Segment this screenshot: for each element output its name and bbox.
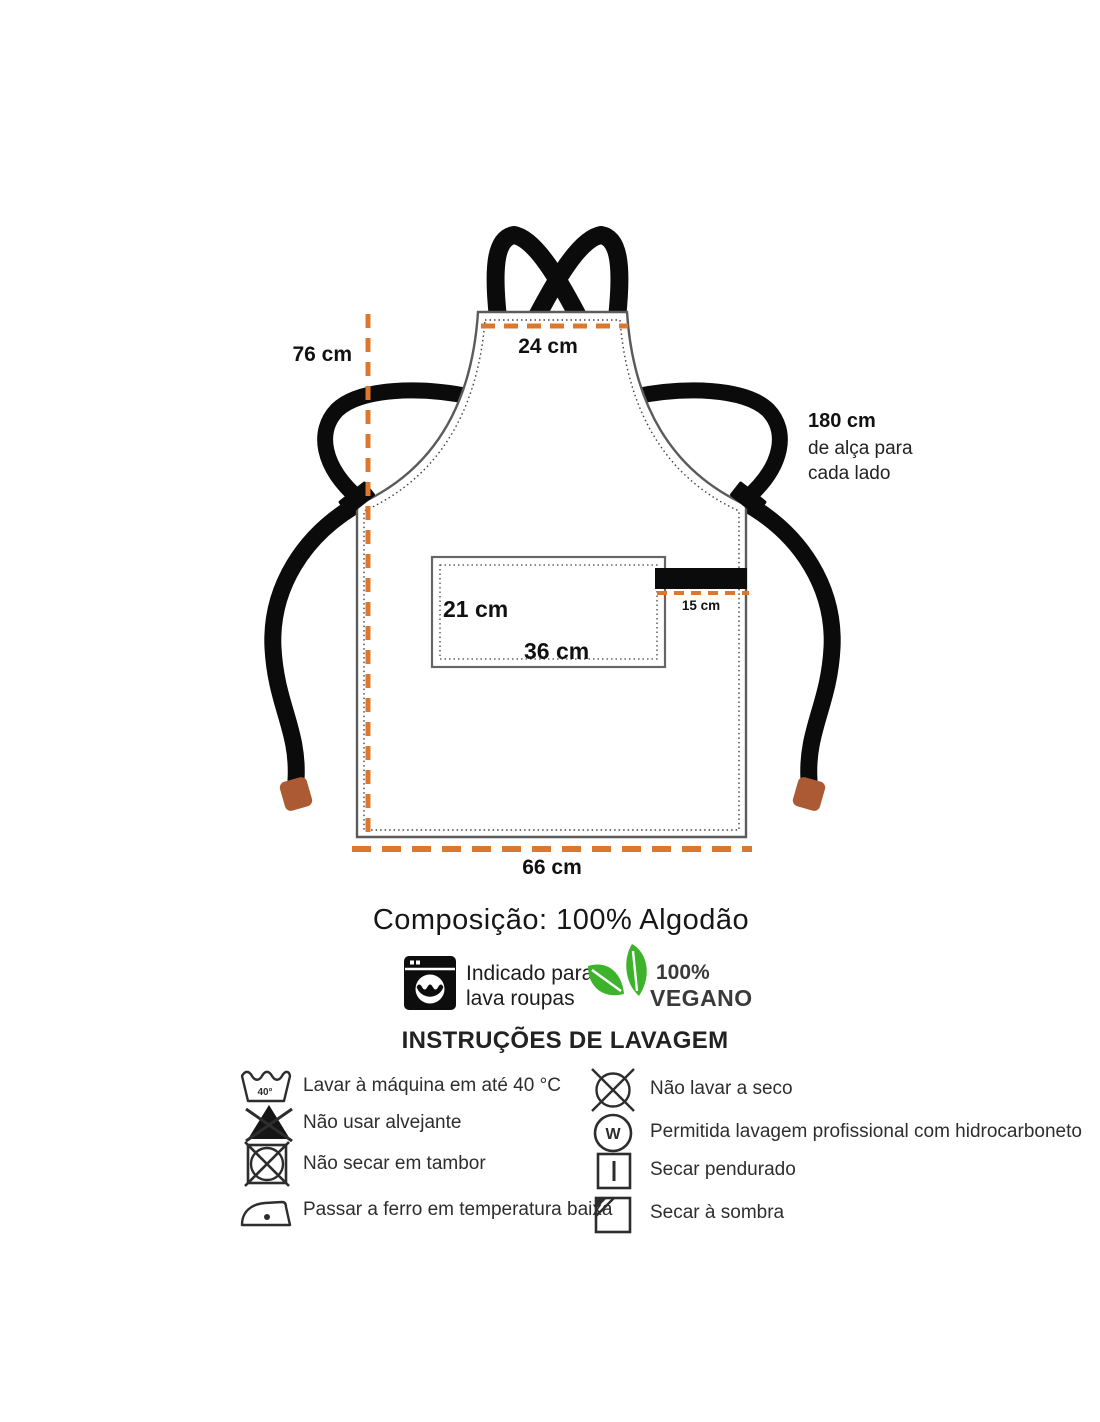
wash-temp-value: 40° [257, 1087, 272, 1098]
care-label-line-dry: Secar pendurado [650, 1159, 796, 1181]
dry-in-shade-icon [591, 1191, 635, 1237]
neck-straps-icon [496, 235, 620, 318]
pocket-width-label: 36 cm [524, 638, 589, 665]
care-label-professional: Permitida lavagem profissional com hidro… [650, 1121, 1082, 1143]
washing-machine-icon [404, 956, 456, 1010]
washer-label-line2: lava roupas [466, 986, 593, 1011]
vegan-word: VEGANO [650, 985, 753, 1012]
tie-tip-left [278, 776, 313, 813]
leaves-icon [578, 942, 656, 1016]
no-tumble-dry-icon [243, 1140, 291, 1188]
care-label-no-dry-clean: Não lavar a seco [650, 1078, 793, 1100]
care-instructions-title: INSTRUÇÕES DE LAVAGEM [30, 1027, 1100, 1055]
bottom-width-label: 66 cm [492, 856, 612, 880]
pocket-height-label: 21 cm [443, 596, 508, 623]
no-bleach-icon [243, 1100, 295, 1144]
vegan-percent: 100% [650, 961, 753, 985]
care-label-wash: Lavar à máquina em até 40 °C [303, 1075, 561, 1097]
care-label-shade: Secar à sombra [650, 1202, 784, 1224]
strap-length-note: 180 cm de alça para cada lado [808, 410, 1028, 486]
measure-height-label: 76 cm [252, 343, 352, 367]
vegan-badge: 100% VEGANO [650, 961, 753, 1012]
iron-low-icon [239, 1194, 293, 1228]
tie-tip-right [791, 776, 826, 813]
care-label-no-bleach: Não usar alvejante [303, 1112, 461, 1134]
strap-length-value: 180 cm [808, 410, 1028, 433]
measure-top-width-label: 24 cm [488, 335, 608, 359]
washer-feature-label: Indicado para lava roupas [466, 961, 593, 1011]
care-label-no-tumble: Não secar em tambor [303, 1153, 486, 1175]
washer-label-line1: Indicado para [466, 961, 593, 986]
apron-spec-sheet: { "diagram": { "measurements": { "height… [0, 0, 1100, 1422]
care-label-iron: Passar a ferro em temperatura baixa [303, 1199, 612, 1221]
side-strap [655, 568, 747, 589]
professional-clean-icon: W [592, 1112, 634, 1154]
side-strap-label: 15 cm [658, 598, 744, 613]
professional-clean-letter: W [605, 1126, 621, 1143]
composition-text: Composição: 100% Algodão [22, 904, 1100, 937]
wash-40-icon: 40° [240, 1068, 292, 1104]
line-dry-icon [594, 1150, 634, 1192]
no-dry-clean-icon [588, 1065, 638, 1115]
strap-note-line1: de alça para [808, 436, 1028, 461]
strap-note-line2: cada lado [808, 461, 1028, 486]
